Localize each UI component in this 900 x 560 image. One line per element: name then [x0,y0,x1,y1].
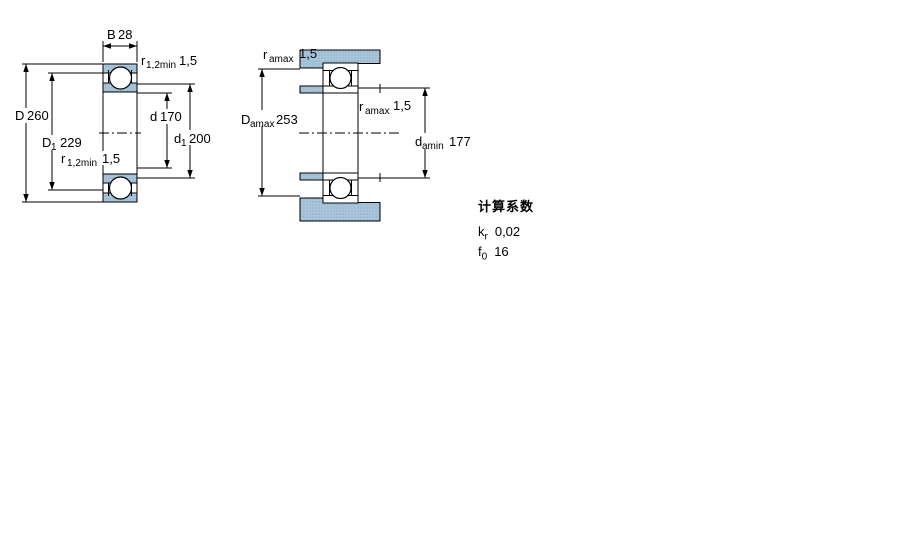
annotation-ramax-top-label: r [263,47,268,62]
annotation-ramax-right-label: r [359,99,364,114]
bearing-cross-section-figure: B 28 D 260 D 1 229 d [13,27,212,202]
technical-drawing-page: B 28 D 260 D 1 229 d [0,0,900,560]
dimension-D1-subscript: 1 [51,142,57,153]
dimension-Damax-subscript: amax [250,119,274,130]
annotation-ramax-right-value: 1,5 [393,98,411,113]
dimension-Damax-value: 253 [276,112,298,127]
annotation-r12min-top: r 1,2min 1,5 [141,53,197,71]
dimension-D1-value: 229 [60,135,82,150]
ball-bottom [330,178,351,199]
dimension-Damax: D amax 253 [238,69,300,196]
factor-f0-value: 16 [494,244,508,259]
calculation-factors-block: 计算系数 kr0,02 f016 [478,196,534,264]
dimension-d-value: 170 [160,109,182,124]
dimension-D: D 260 [13,64,103,202]
annotation-ramax-top-value: 1,5 [299,46,317,61]
mounting-dimensions-figure: D amax 253 d amin 177 r amax 1,5 r amax … [238,46,471,221]
annotation-r12min-top-subscript: 1,2min [146,60,176,71]
shaft-shoulder-bottom [300,173,323,180]
calculation-factor-f0: f016 [478,245,534,264]
factor-kr-value: 0,02 [495,224,520,239]
dimension-B: B 28 [103,27,137,62]
dimension-damin-subscript: amin [422,141,444,152]
dimension-D-label: D [15,108,24,123]
ball-top [110,67,132,89]
dimension-d1-value: 200 [189,131,211,146]
calculation-factor-kr: kr0,02 [478,225,534,244]
annotation-ramax-right: r amax 1,5 [359,98,411,117]
calculation-factors-title: 计算系数 [478,196,534,215]
dimension-d1: d 1 200 [137,84,212,178]
annotation-ramax-top-subscript: amax [269,54,293,65]
dimension-B-label: B [107,27,116,42]
dimension-damin-value: 177 [449,134,471,149]
annotation-r12min-top-value: 1,5 [179,53,197,68]
dimension-d1-subscript: 1 [181,138,187,149]
factor-kr-subscript: r [485,232,488,243]
dimension-D1-label: D [42,135,51,150]
dimension-D-value: 260 [27,108,49,123]
dimension-d-label: d [150,109,157,124]
factor-f0-subscript: 0 [482,251,488,262]
shaft-shoulder-top [300,86,323,93]
annotation-ramax-right-subscript: amax [365,106,389,117]
dimension-D1: D 1 229 [40,73,103,190]
technical-drawing-canvas: B 28 D 260 D 1 229 d [0,0,900,560]
ball-bottom [110,177,132,199]
annotation-r12min-middle-label: r [61,151,66,166]
ball-top [330,68,351,89]
dimension-B-value: 28 [118,27,132,42]
annotation-r12min-middle-value: 1,5 [102,151,120,166]
annotation-r12min-middle-subscript: 1,2min [67,158,97,169]
dimension-Damax-label: D [241,112,250,127]
